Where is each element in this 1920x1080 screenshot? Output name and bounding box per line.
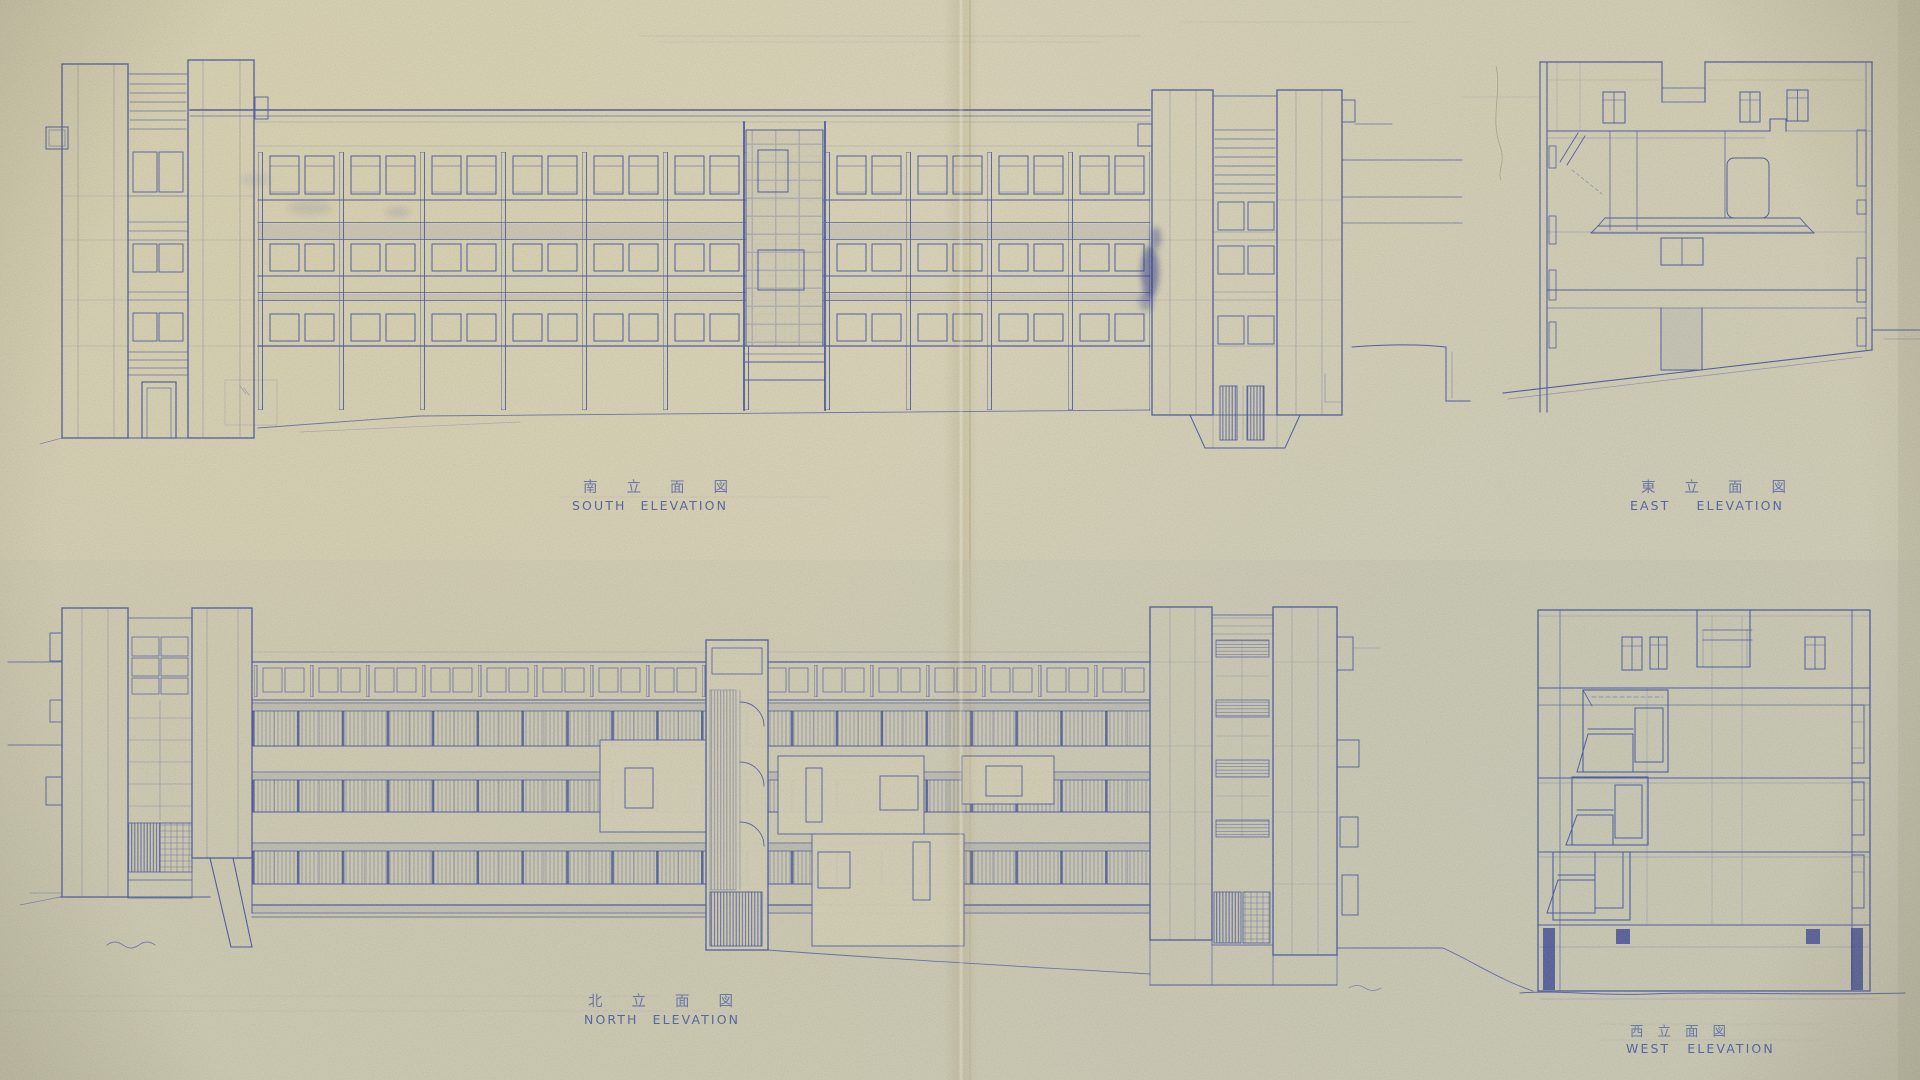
blueprint-canvas: 南立面図 SOUTH ELEVATION 東立面図 EAST ELEVATION…: [0, 0, 1920, 1080]
blueprint-sheet: 南立面図 SOUTH ELEVATION 東立面図 EAST ELEVATION…: [0, 0, 1920, 1080]
paper-grain: [0, 0, 1920, 1080]
